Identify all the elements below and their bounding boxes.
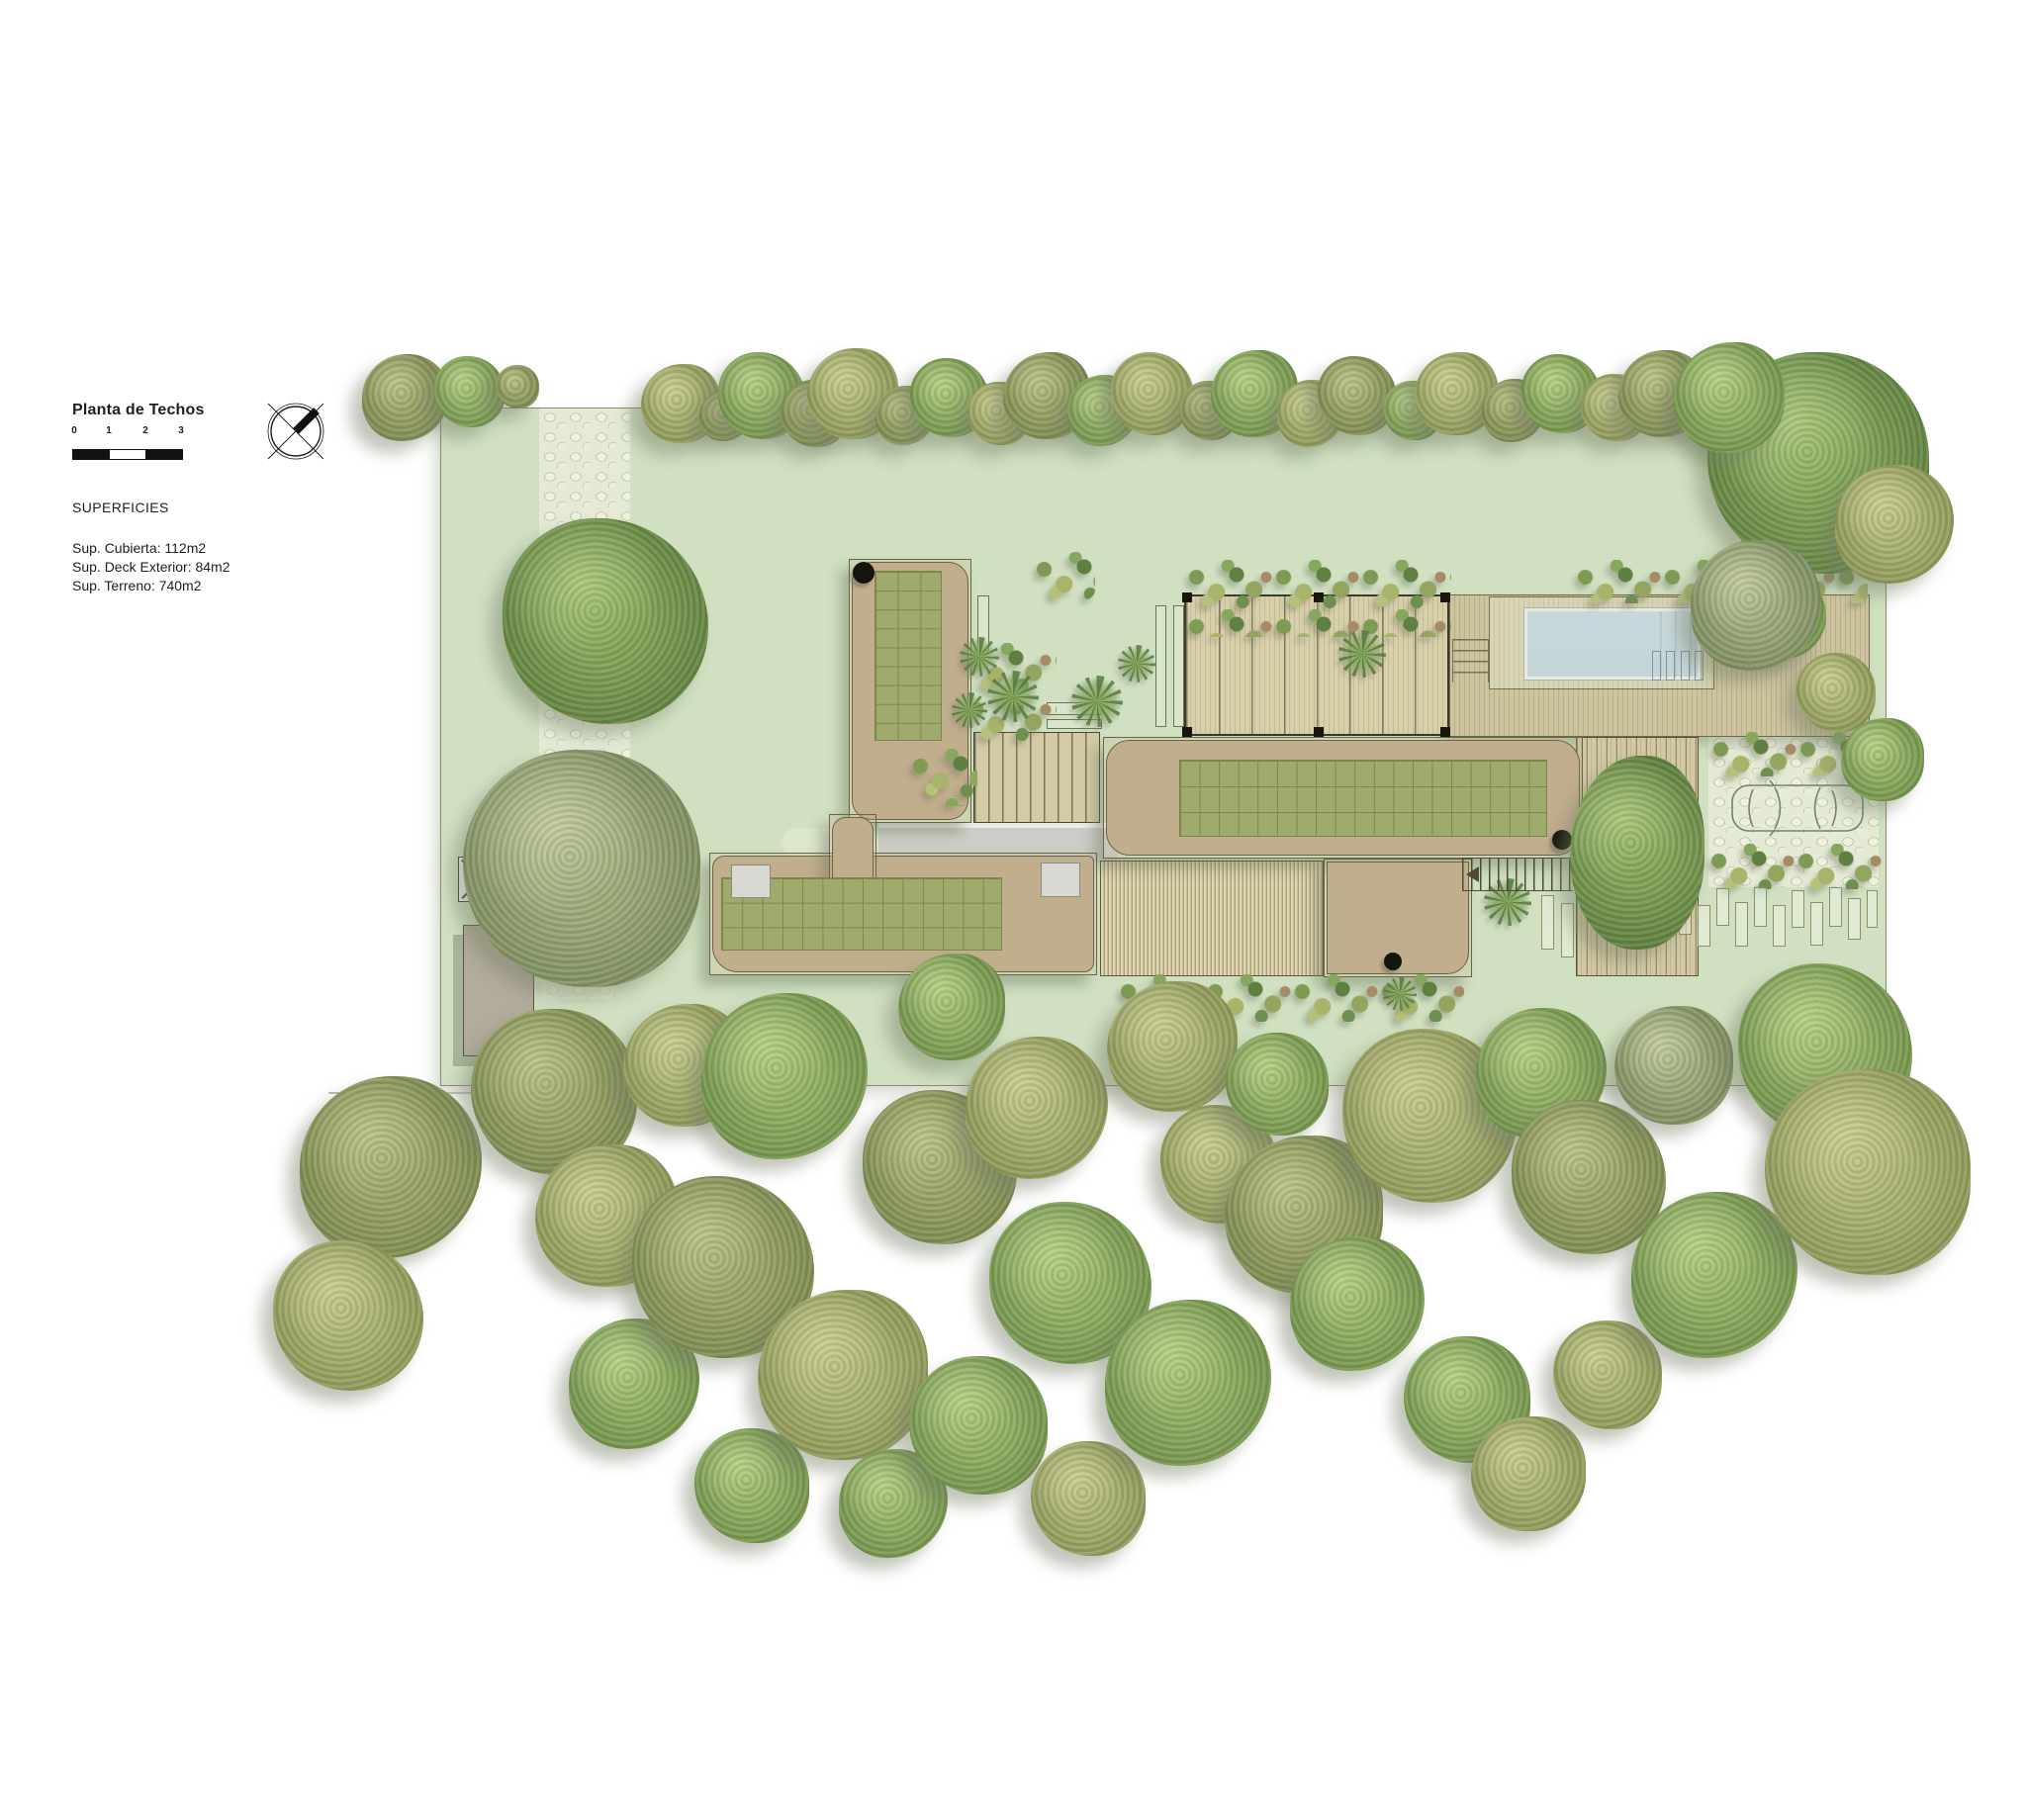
pergola-post <box>1440 727 1450 737</box>
stepping-stone <box>1810 902 1823 946</box>
tree <box>1765 1069 1971 1275</box>
tree <box>1031 1441 1146 1556</box>
tree <box>1553 1320 1662 1429</box>
tree <box>1318 356 1397 435</box>
tree <box>1105 1300 1271 1466</box>
roof-drain <box>1384 953 1402 970</box>
pergola-post <box>1314 727 1324 737</box>
skylight <box>731 864 771 898</box>
stepping-stone <box>1735 902 1748 947</box>
pool-step <box>1652 651 1661 681</box>
pool-step <box>1695 651 1704 681</box>
stepping-stone <box>1541 895 1554 950</box>
stepping-stone <box>1792 890 1804 928</box>
tree <box>300 1076 482 1258</box>
stepping-stone <box>1848 898 1861 940</box>
planter <box>1155 605 1166 727</box>
tree <box>1631 1192 1797 1358</box>
entry-pergola <box>973 732 1100 823</box>
tree <box>434 356 506 427</box>
palm <box>1118 645 1155 682</box>
roof-plan-canvas: Planta de Techos 0 1 2 3 SUPERFICIES Sup <box>0 0 2026 1820</box>
pool-step <box>1666 651 1675 681</box>
deck-stairs <box>1462 858 1573 891</box>
roof-drain <box>1552 830 1572 850</box>
green-roof-main <box>1179 760 1547 837</box>
tree <box>1674 342 1785 453</box>
tree <box>1835 465 1954 584</box>
palm <box>1071 676 1123 727</box>
pergola-post <box>1182 727 1192 737</box>
tree <box>1290 1236 1425 1371</box>
palm <box>1383 977 1417 1011</box>
palm <box>987 671 1039 722</box>
tree <box>1614 1006 1733 1125</box>
tree <box>701 993 868 1159</box>
tree <box>898 954 1005 1060</box>
tree <box>1226 1033 1329 1136</box>
tree <box>1570 756 1704 950</box>
roof-drain <box>853 562 875 584</box>
stepping-stone <box>1754 887 1767 927</box>
louvered-deck <box>1100 861 1324 976</box>
tree <box>1471 1416 1586 1531</box>
tree <box>1107 981 1238 1112</box>
tree <box>496 365 539 409</box>
planting-bed <box>910 749 977 806</box>
green-roof-north <box>875 571 942 741</box>
tree <box>909 1356 1048 1495</box>
stepping-stone <box>1716 888 1729 926</box>
pool-step <box>1681 651 1690 681</box>
stepping-stone <box>1867 890 1878 928</box>
stepping-stone <box>1561 903 1574 957</box>
stepping-stone <box>1773 905 1786 947</box>
tree <box>966 1037 1108 1179</box>
palm <box>952 692 987 728</box>
parked-car <box>1729 777 1866 839</box>
tree <box>1841 718 1924 801</box>
tree <box>758 1290 928 1460</box>
tree <box>1796 653 1876 732</box>
stepping-stone <box>1829 887 1842 927</box>
planter <box>1173 605 1184 727</box>
skylight <box>1041 863 1080 897</box>
palm <box>1338 630 1386 678</box>
planting-bed <box>1034 552 1095 599</box>
stepping-stone <box>1698 905 1710 947</box>
tree <box>273 1240 423 1391</box>
palm <box>960 637 999 677</box>
pool-stairs <box>1452 639 1489 682</box>
site-plan-stage <box>0 0 2026 1820</box>
planting-bed <box>1708 844 1882 889</box>
planting-bed <box>1186 560 1451 637</box>
